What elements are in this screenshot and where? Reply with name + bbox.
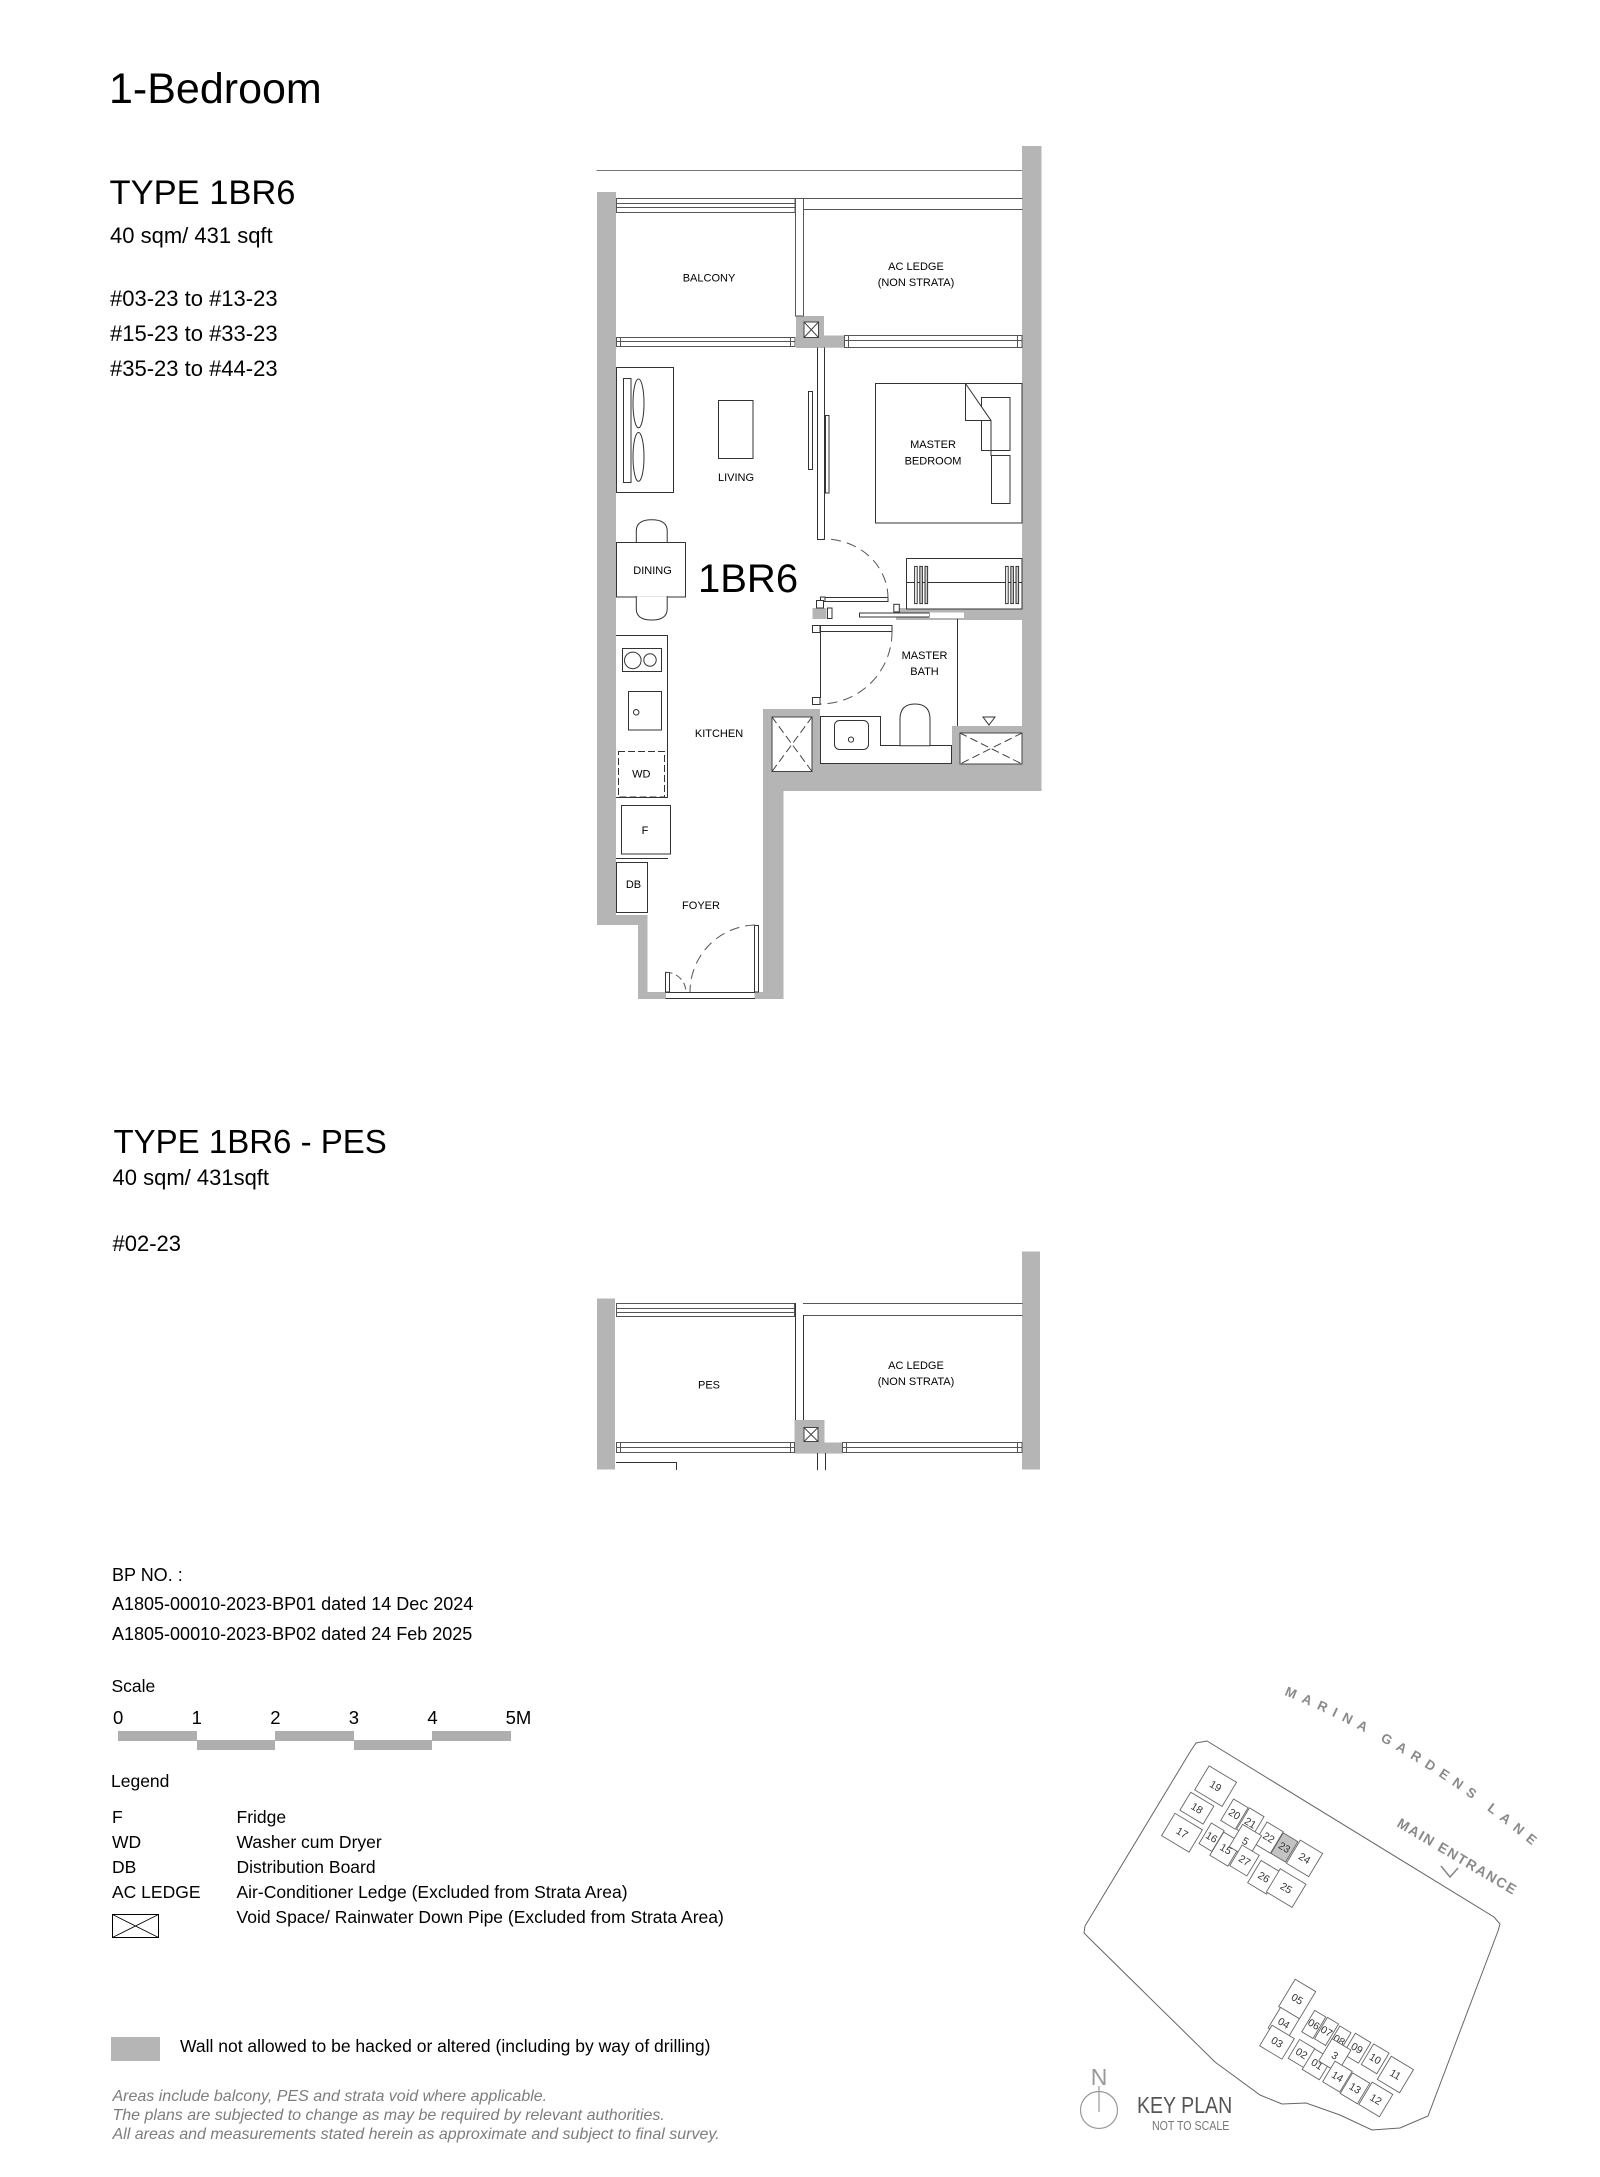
svg-text:KITCHEN: KITCHEN <box>695 728 743 740</box>
svg-text:MAIN ENTRANCE: MAIN ENTRANCE <box>1394 1815 1520 1898</box>
svg-text:NOT TO SCALE: NOT TO SCALE <box>1152 2119 1230 2133</box>
svg-text:N: N <box>1091 2064 1108 2090</box>
svg-text:WD: WD <box>632 769 650 781</box>
svg-text:FOYER: FOYER <box>682 900 720 912</box>
svg-text:1BR6: 1BR6 <box>698 557 798 601</box>
svg-text:MASTER: MASTER <box>902 650 948 662</box>
svg-text:LIVING: LIVING <box>718 472 754 484</box>
svg-text:(NON STRATA): (NON STRATA) <box>878 277 955 289</box>
svg-text:PES: PES <box>698 1380 720 1392</box>
svg-text:MASTER: MASTER <box>910 439 956 451</box>
svg-text:AC LEDGE: AC LEDGE <box>888 1360 944 1372</box>
svg-text:DINING: DINING <box>633 565 672 577</box>
svg-text:(NON STRATA): (NON STRATA) <box>878 1376 955 1388</box>
svg-text:BATH: BATH <box>910 666 939 678</box>
svg-text:BEDROOM: BEDROOM <box>905 456 962 468</box>
svg-text:F: F <box>642 825 649 837</box>
svg-text:KEY PLAN: KEY PLAN <box>1137 2093 1232 2119</box>
svg-text:BALCONY: BALCONY <box>683 273 736 285</box>
svg-text:DB: DB <box>626 879 641 891</box>
svg-text:AC LEDGE: AC LEDGE <box>888 261 944 273</box>
